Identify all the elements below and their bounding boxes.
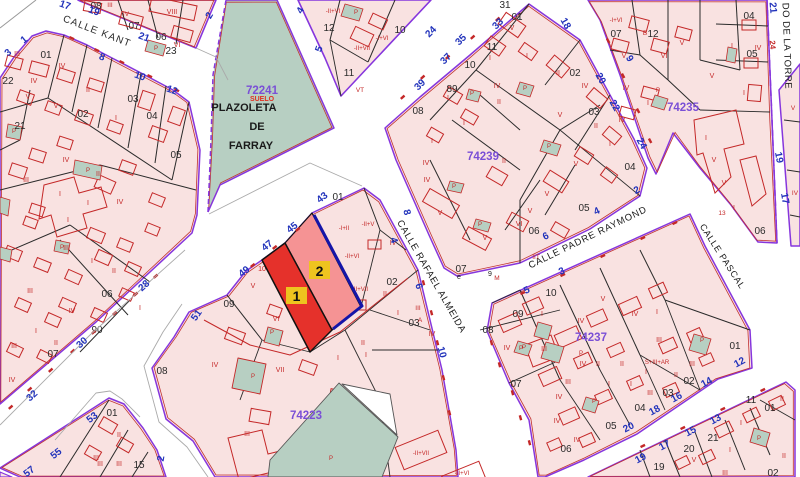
svg-text:01: 01 [729,341,741,352]
svg-text:III: III [63,245,69,252]
svg-text:06: 06 [754,226,766,237]
svg-text:III: III [23,177,29,184]
svg-text:I: I [337,355,339,362]
svg-text:IV: IV [582,83,589,90]
svg-text:V: V [601,296,606,303]
svg-text:S+III+AR: S+III+AR [645,360,670,366]
svg-text:I: I [87,200,89,207]
svg-text:09: 09 [223,299,235,310]
svg-text:12: 12 [647,29,659,40]
svg-text:-II+VII: -II+VII [354,46,371,52]
svg-text:IV: IV [212,362,219,369]
svg-text:04: 04 [743,11,755,22]
svg-text:09: 09 [512,309,524,320]
svg-text:M: M [494,275,499,282]
svg-text:P: P [757,436,761,442]
svg-text:24: 24 [768,40,778,50]
svg-text:03: 03 [127,94,139,105]
svg-text:P: P [452,184,456,190]
svg-text:I: I [397,310,399,317]
svg-text:III: III [565,379,571,386]
svg-text:VT: VT [356,87,364,94]
svg-text:11: 11 [344,68,355,79]
svg-text:I: I [731,43,733,50]
svg-text:01: 01 [332,192,344,203]
svg-text:V: V [558,112,563,119]
svg-text:1: 1 [293,288,301,304]
svg-text:05: 05 [170,150,182,161]
svg-text:IV: IV [63,157,70,164]
svg-text:V: V [680,40,685,47]
svg-text:-II+VII: -II+VII [413,451,430,457]
svg-text:P: P [470,91,474,97]
svg-text:08: 08 [156,366,168,377]
svg-text:02: 02 [77,109,89,120]
svg-text:II: II [112,268,116,275]
svg-text:-II+VI: -II+VI [326,9,341,15]
svg-text:II: II [782,453,786,460]
svg-text:IV: IV [580,361,587,368]
svg-text:II: II [383,291,387,298]
svg-text:05: 05 [605,421,617,432]
svg-text:IV: IV [755,45,762,52]
svg-text:B: B [643,30,647,37]
svg-text:P: P [547,144,551,150]
svg-text:P: P [579,351,583,357]
svg-text:IV: IV [429,331,436,338]
svg-text:V: V [710,73,715,80]
svg-text:III: III [244,431,250,438]
svg-text:07: 07 [128,21,140,32]
svg-text:VII: VII [276,367,285,374]
svg-text:10: 10 [394,25,406,36]
svg-text:I: I [743,90,745,97]
svg-text:I: I [115,115,117,122]
svg-text:01: 01 [511,12,523,23]
svg-text:V: V [483,235,488,242]
svg-text:I: I [656,309,658,316]
svg-text:13: 13 [718,210,726,217]
svg-text:01: 01 [106,408,118,419]
svg-text:21: 21 [14,121,26,132]
svg-text:DE: DE [249,121,264,133]
svg-text:I: I [705,135,707,142]
svg-text:I: I [463,120,465,127]
svg-text:08: 08 [412,106,424,117]
svg-text:21: 21 [707,433,719,444]
svg-text:74237: 74237 [575,332,607,344]
svg-text:I: I [365,352,367,359]
svg-text:P: P [592,399,596,405]
svg-text:I: I [91,258,93,265]
svg-text:89: 89 [446,84,458,95]
svg-text:FARRAY: FARRAY [229,140,274,152]
svg-text:I: I [609,141,611,148]
svg-text:I: I [541,311,543,318]
svg-text:IV: IV [556,394,563,401]
svg-text:07: 07 [510,379,522,390]
svg-text:I: I [67,217,69,224]
svg-text:11: 11 [487,42,498,53]
svg-text:P: P [478,222,482,228]
svg-text:-II+V: -II+V [362,222,375,228]
svg-text:III: III [27,288,33,295]
svg-text:V: V [510,25,515,32]
svg-text:P: P [519,346,523,352]
svg-text:III: III [107,2,113,9]
svg-text:P: P [251,374,255,380]
svg-text:IV: IV [574,437,581,444]
svg-text:P: P [270,330,274,336]
svg-text:I: I [647,100,649,107]
svg-text:III: III [116,461,122,468]
svg-text:e: e [457,274,461,281]
svg-text:P: P [329,456,333,462]
svg-text:II: II [361,340,365,347]
svg-text:10: 10 [464,60,476,71]
svg-text:02: 02 [683,376,695,387]
svg-text:P: P [656,88,660,94]
svg-text:I: I [431,138,433,145]
svg-text:I: I [608,381,610,388]
svg-text:V: V [528,208,533,215]
svg-text:P: P [354,10,358,16]
svg-text:19: 19 [653,462,665,473]
svg-text:I: I [645,369,647,376]
svg-text:10: 10 [258,266,266,273]
svg-text:02: 02 [569,68,581,79]
svg-text:V: V [545,191,550,198]
svg-text:V: V [251,283,256,290]
svg-text:IV: IV [578,318,585,325]
svg-text:20: 20 [683,444,695,455]
svg-text:06: 06 [560,444,572,455]
svg-text:P: P [86,168,90,174]
svg-text:IV: IV [69,308,76,315]
svg-text:06: 06 [101,289,113,300]
svg-text:-II+VI: -II+VI [455,471,470,477]
svg-text:11: 11 [746,395,757,406]
svg-text:II: II [556,70,560,77]
svg-text:IV: IV [792,190,799,197]
svg-text:PLAZOLETA: PLAZOLETA [211,102,276,114]
svg-text:I: I [526,53,528,60]
svg-text:04: 04 [634,403,646,414]
svg-text:05: 05 [578,203,590,214]
svg-text:III: III [722,470,728,477]
svg-text:04: 04 [146,111,158,122]
svg-text:P: P [700,338,704,344]
svg-text:III: III [689,361,695,368]
svg-text:2: 2 [316,263,324,279]
svg-text:III: III [14,51,20,58]
svg-text:II: II [117,432,121,439]
svg-text:74235: 74235 [667,102,700,114]
svg-text:IV: IV [117,199,124,206]
svg-text:V: V [54,103,59,110]
svg-text:IV: IV [632,311,639,318]
svg-text:V: V [712,157,717,164]
svg-text:03: 03 [588,107,600,118]
svg-text:9: 9 [488,271,492,278]
svg-text:II: II [96,171,100,178]
svg-text:V: V [692,457,697,464]
svg-text:II: II [54,340,58,347]
svg-text:22: 22 [2,76,14,87]
svg-text:VI: VI [174,42,181,49]
svg-text:IV: IV [59,63,66,70]
svg-text:A: A [418,317,423,324]
svg-text:IV: IV [619,117,626,124]
svg-text:02: 02 [386,277,398,288]
svg-text:II: II [502,158,506,165]
svg-text:IV: IV [31,78,38,85]
svg-text:01: 01 [764,403,776,414]
svg-text:-I+VI: -I+VI [610,18,623,24]
svg-text:P: P [523,86,527,92]
svg-text:IV: IV [623,85,630,92]
svg-text:I: I [139,305,141,312]
svg-text:IV: IV [504,345,511,352]
svg-text:V: V [574,161,579,168]
svg-text:12: 12 [323,23,335,34]
svg-text:04: 04 [624,162,636,173]
svg-text:V: V [26,94,31,101]
svg-text:I: I [630,381,632,388]
svg-text:II: II [594,123,598,130]
svg-text:-II+VI: -II+VI [345,254,360,260]
svg-text:IIT: IIT [532,254,540,261]
svg-text:V: V [791,105,796,112]
svg-text:10: 10 [545,288,557,299]
svg-text:I: I [733,205,735,212]
svg-text:15: 15 [133,460,145,471]
svg-text:74239: 74239 [467,151,499,163]
svg-text:I: I [729,447,731,454]
svg-text:07: 07 [610,29,622,40]
svg-text:VI: VI [516,221,523,228]
svg-text:III: III [415,305,421,312]
svg-text:08: 08 [482,325,494,336]
svg-text:VIII: VIII [167,9,178,16]
svg-text:I: I [447,95,449,102]
svg-text:-I+VI: -I+VI [376,36,389,42]
svg-text:V: V [722,180,727,187]
svg-text:IV: IV [424,177,431,184]
svg-text:06: 06 [528,226,540,237]
svg-text:21: 21 [767,2,779,14]
svg-text:01: 01 [40,50,52,61]
svg-text:V: V [438,210,443,217]
svg-text:31: 31 [499,0,511,11]
svg-text:VI: VI [273,316,280,323]
svg-text:07: 07 [47,349,59,360]
svg-text:IV: IV [554,418,561,425]
svg-text:P: P [154,46,158,52]
svg-text:I: I [489,55,491,62]
svg-text:90: 90 [91,325,103,336]
svg-text:III: III [647,390,653,397]
svg-text:IV: IV [9,377,16,384]
svg-text:06: 06 [155,32,167,43]
svg-text:III: III [656,337,662,344]
svg-text:VI: VI [661,53,668,60]
svg-text:-I+II: -I+II [339,226,350,232]
svg-text:02: 02 [767,468,779,477]
svg-text:II: II [86,87,90,94]
svg-text:IV: IV [423,160,430,167]
svg-text:I: I [35,328,37,335]
svg-text:74223: 74223 [290,410,322,422]
svg-text:II: II [780,396,784,403]
svg-text:I: I [59,191,61,198]
svg-text:III: III [541,346,547,353]
svg-text:IV: IV [123,11,130,18]
svg-text:I: I [740,420,742,427]
svg-text:IV: IV [494,83,501,90]
svg-text:II: II [674,372,678,379]
svg-text:II: II [596,361,600,368]
svg-text:P: P [12,129,16,135]
svg-text:II: II [497,99,501,106]
svg-text:II: II [620,361,624,368]
svg-text:III: III [11,343,17,350]
svg-text:III: III [97,461,103,468]
